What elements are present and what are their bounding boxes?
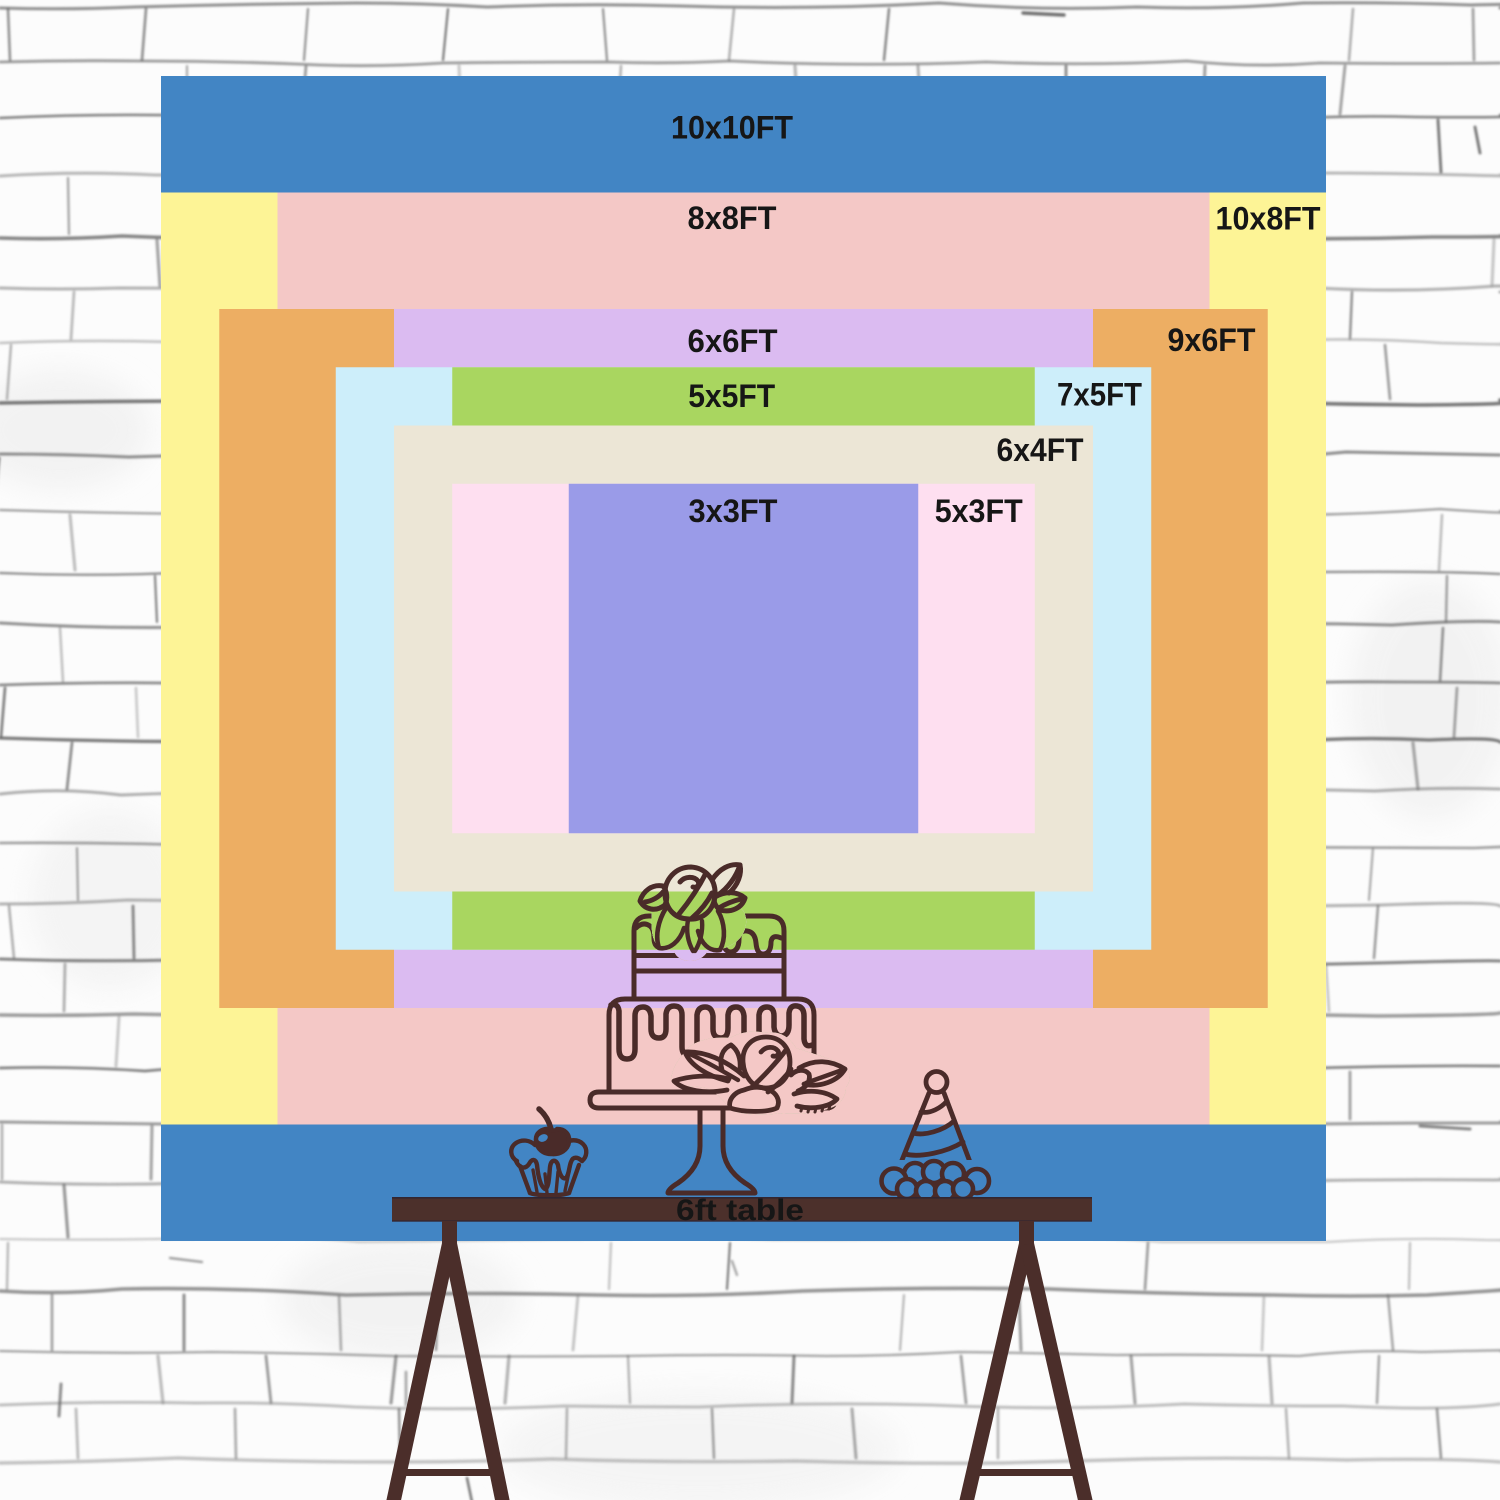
svg-text:5x5FT: 5x5FT [688, 378, 775, 414]
svg-text:10x10FT: 10x10FT [671, 110, 793, 146]
svg-text:5x3FT: 5x3FT [935, 493, 1023, 529]
svg-text:10x8FT: 10x8FT [1216, 201, 1321, 237]
svg-text:7x5FT: 7x5FT [1057, 377, 1142, 413]
svg-text:8x8FT: 8x8FT [688, 200, 777, 236]
svg-text:6x6FT: 6x6FT [688, 323, 778, 359]
svg-text:6x4FT: 6x4FT [997, 432, 1084, 468]
svg-text:3x3FT: 3x3FT [689, 493, 778, 529]
svg-text:9x6FT: 9x6FT [1168, 322, 1256, 358]
svg-text:6ft table: 6ft table [676, 1194, 804, 1227]
